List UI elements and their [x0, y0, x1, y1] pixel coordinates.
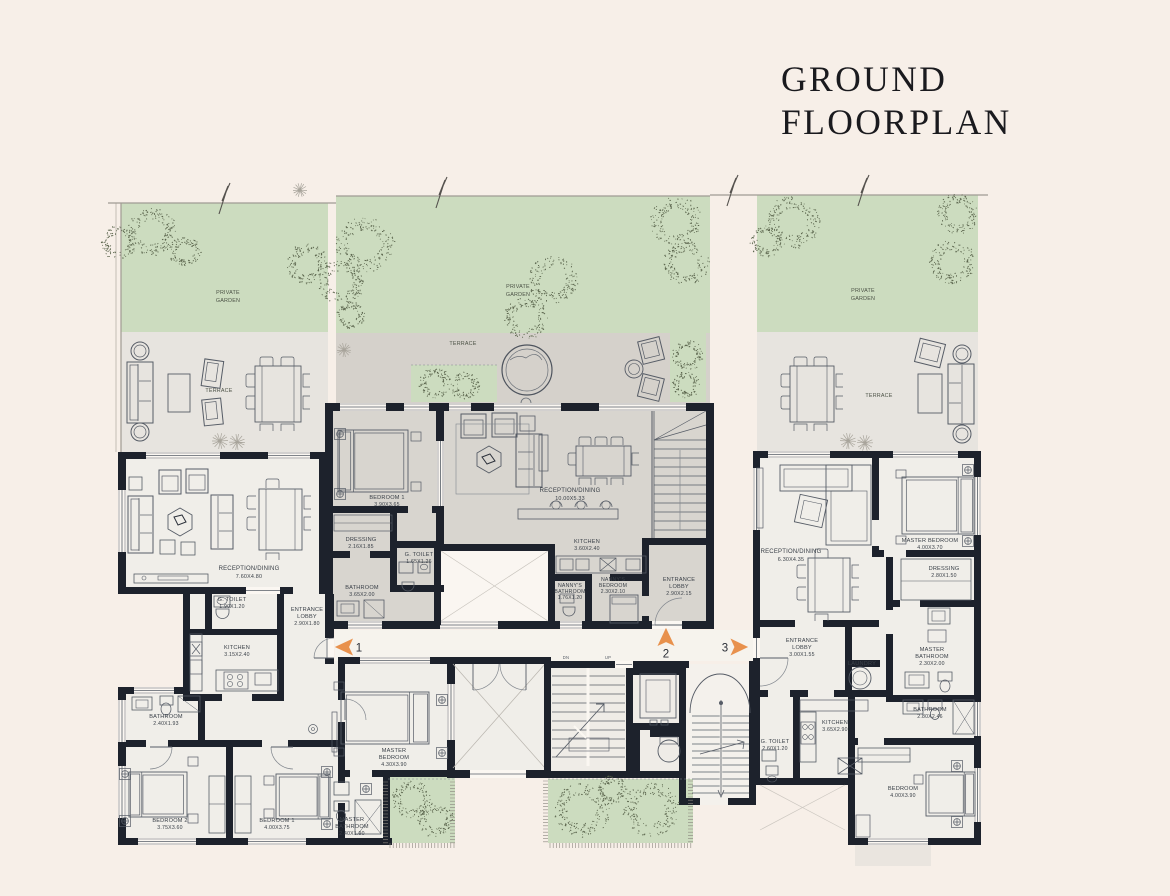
- svg-text:2.30X2.00: 2.30X2.00: [919, 661, 944, 667]
- svg-text:1.76X1.20: 1.76X1.20: [558, 595, 583, 601]
- svg-text:BEDROOM 1: BEDROOM 1: [369, 495, 404, 501]
- svg-text:BATHROOM: BATHROOM: [913, 707, 947, 713]
- svg-text:2.40X1.93: 2.40X1.93: [153, 721, 178, 727]
- svg-text:MASTER BEDROOM: MASTER BEDROOM: [902, 538, 959, 544]
- svg-text:ENTRANCE: ENTRANCE: [786, 638, 818, 644]
- svg-text:TERRACE: TERRACE: [449, 341, 476, 347]
- svg-text:LOBBY: LOBBY: [669, 584, 689, 590]
- svg-text:2.60X1.20: 2.60X1.20: [762, 746, 787, 752]
- svg-text:2.90X1.80: 2.90X1.80: [294, 621, 319, 627]
- svg-text:RECEPTION/DINING: RECEPTION/DINING: [219, 566, 280, 572]
- svg-text:BATHROOM: BATHROOM: [149, 714, 183, 720]
- svg-text:ENTRANCE: ENTRANCE: [663, 577, 695, 583]
- svg-text:2.40X1.90: 2.40X1.90: [339, 831, 364, 837]
- svg-text:2.90X2.15: 2.90X2.15: [666, 591, 691, 597]
- svg-text:BEDROOM: BEDROOM: [888, 786, 918, 792]
- svg-text:DN: DN: [563, 655, 569, 660]
- svg-text:TERRACE: TERRACE: [205, 388, 232, 394]
- svg-text:10.00X5.33: 10.00X5.33: [555, 496, 585, 502]
- svg-text:PRIVATE: PRIVATE: [851, 288, 875, 294]
- svg-text:ENTRANCE: ENTRANCE: [291, 607, 323, 613]
- svg-text:1.90X1.20: 1.90X1.20: [219, 604, 244, 610]
- svg-text:2.30X2.10: 2.30X2.10: [601, 589, 626, 595]
- svg-text:RECEPTION/DINING: RECEPTION/DINING: [761, 549, 822, 555]
- svg-text:BATHROOM: BATHROOM: [335, 824, 369, 830]
- svg-text:KITCHEN: KITCHEN: [224, 645, 250, 651]
- svg-text:4.00X3.75: 4.00X3.75: [264, 825, 289, 831]
- svg-text:PRIVATE: PRIVATE: [216, 290, 240, 296]
- svg-text:KITCHEN: KITCHEN: [574, 539, 600, 545]
- svg-text:DRESSING: DRESSING: [346, 537, 377, 543]
- svg-text:7.60X4.80: 7.60X4.80: [236, 574, 262, 580]
- svg-text:2: 2: [663, 649, 670, 661]
- svg-text:LAUNDRY: LAUNDRY: [848, 661, 876, 667]
- svg-text:DRESSING: DRESSING: [929, 566, 960, 572]
- svg-text:3.65X2.90: 3.65X2.90: [822, 727, 847, 733]
- svg-text:3: 3: [722, 643, 729, 655]
- svg-text:3.00X1.55: 3.00X1.55: [789, 652, 814, 658]
- svg-text:BEDROOM 2: BEDROOM 2: [152, 818, 187, 824]
- svg-text:UP: UP: [605, 655, 611, 660]
- svg-text:LOBBY: LOBBY: [297, 614, 317, 620]
- svg-text:3.65X2.00: 3.65X2.00: [349, 592, 374, 598]
- svg-text:GARDEN: GARDEN: [216, 298, 240, 304]
- svg-text:2.16X1.85: 2.16X1.85: [348, 544, 373, 550]
- svg-text:LOBBY: LOBBY: [792, 645, 812, 651]
- svg-text:3.15X2.40: 3.15X2.40: [224, 652, 249, 658]
- svg-text:G. TOILET: G. TOILET: [218, 597, 247, 603]
- svg-text:1.65X1.26: 1.65X1.26: [406, 559, 431, 565]
- svg-text:3.75X3.60: 3.75X3.60: [157, 825, 182, 831]
- svg-text:BEDROOM: BEDROOM: [379, 755, 409, 761]
- svg-text:MASTER: MASTER: [920, 647, 945, 653]
- svg-text:G. TOILET: G. TOILET: [405, 552, 434, 558]
- svg-text:MASTER: MASTER: [382, 748, 407, 754]
- svg-text:4.00X3.90: 4.00X3.90: [890, 793, 915, 799]
- svg-text:MASTER: MASTER: [340, 817, 365, 823]
- svg-text:BATHROOM: BATHROOM: [345, 585, 379, 591]
- svg-text:KITCHEN: KITCHEN: [822, 720, 848, 726]
- svg-text:GARDEN: GARDEN: [506, 292, 530, 298]
- svg-text:TERRACE: TERRACE: [865, 393, 892, 399]
- svg-text:BATHROOM: BATHROOM: [915, 654, 949, 660]
- svg-text:G. TOILET: G. TOILET: [761, 739, 790, 745]
- svg-text:RECEPTION/DINING: RECEPTION/DINING: [540, 488, 601, 494]
- svg-text:2.80X1.50: 2.80X1.50: [931, 573, 956, 579]
- svg-text:GROUND: GROUND: [781, 59, 947, 99]
- svg-text:4.00X3.70: 4.00X3.70: [917, 545, 942, 551]
- svg-text:4.30X3.90: 4.30X3.90: [381, 762, 406, 768]
- svg-text:2.80X2.46: 2.80X2.46: [917, 714, 942, 720]
- svg-text:1: 1: [356, 643, 363, 655]
- svg-text:GARDEN: GARDEN: [851, 296, 875, 302]
- svg-text:BEDROOM 1: BEDROOM 1: [259, 818, 294, 824]
- svg-text:3.60X2.40: 3.60X2.40: [574, 546, 599, 552]
- svg-text:6.30X4.35: 6.30X4.35: [778, 557, 804, 563]
- svg-text:3.90X3.65: 3.90X3.65: [374, 502, 399, 508]
- svg-text:PRIVATE: PRIVATE: [506, 284, 530, 290]
- svg-text:FLOORPLAN: FLOORPLAN: [781, 102, 1012, 142]
